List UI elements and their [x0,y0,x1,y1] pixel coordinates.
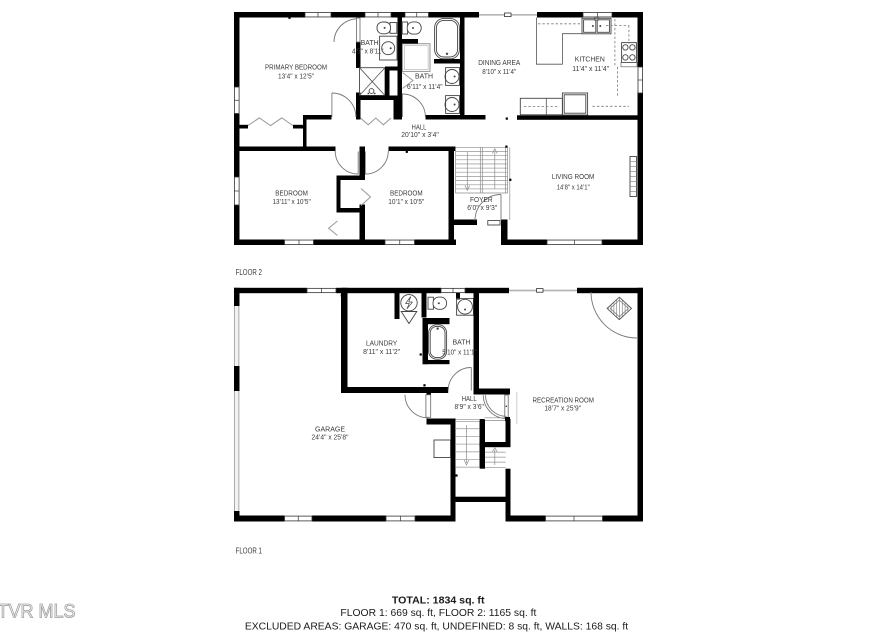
svg-text:5’10" x 11’1": 5’10" x 11’1" [442,348,477,356]
svg-text:14’8" x 14’1": 14’8" x 14’1" [557,183,590,191]
svg-text:13’4" x 12’5": 13’4" x 12’5" [278,72,314,80]
svg-text:TVR MLS: TVR MLS [0,602,76,623]
svg-text:EXCLUDED AREAS: GARAGE: 470 sq: EXCLUDED AREAS: GARAGE: 470 sq. ft, UNDE… [245,621,628,632]
svg-text:LAUNDRY: LAUNDRY [366,339,397,348]
svg-text:BATH: BATH [415,72,433,81]
svg-text:13’11" x 10’5": 13’11" x 10’5" [273,198,312,206]
svg-text:10’1" x 10’5": 10’1" x 10’5" [388,198,424,206]
svg-text:24’4" x 25’8": 24’4" x 25’8" [312,433,349,441]
svg-text:DINING AREA: DINING AREA [478,58,520,67]
svg-text:FOYER: FOYER [470,195,493,204]
svg-text:18’7" x 25’9": 18’7" x 25’9" [544,405,581,413]
svg-text:BATH: BATH [361,38,379,47]
svg-text:TOTAL: 1834 sq. ft: TOTAL: 1834 sq. ft [392,596,485,607]
svg-text:BEDROOM: BEDROOM [390,188,423,197]
svg-text:FLOOR 1: 669 sq. ft, FLOOR 2:: FLOOR 1: 669 sq. ft, FLOOR 2: 1165 sq. f… [340,608,536,619]
svg-text:6’11" x 11’4": 6’11" x 11’4" [407,83,443,91]
svg-text:8’10" x 11’4": 8’10" x 11’4" [482,68,516,76]
svg-text:KITCHEN: KITCHEN [575,54,605,63]
svg-text:LIVING ROOM: LIVING ROOM [552,172,595,181]
svg-text:BEDROOM: BEDROOM [275,188,308,197]
svg-text:HALL: HALL [462,394,477,403]
svg-text:FLOOR 2: FLOOR 2 [236,267,263,277]
svg-text:GARAGE: GARAGE [315,424,345,433]
svg-text:4’5" x 8’11": 4’5" x 8’11" [352,47,384,55]
svg-text:20’10" x 3’4": 20’10" x 3’4" [401,131,439,139]
svg-text:BATH: BATH [453,337,471,346]
svg-text:FLOOR 1: FLOOR 1 [236,545,263,555]
svg-text:PRIMARY BEDROOM: PRIMARY BEDROOM [265,63,327,72]
svg-text:RECREATION ROOM: RECREATION ROOM [533,395,594,404]
svg-text:11’4" x 11’4": 11’4" x 11’4" [572,65,609,73]
svg-text:8’11" x 11’2": 8’11" x 11’2" [363,348,400,356]
svg-text:6’0" x 9’3": 6’0" x 9’3" [467,204,497,212]
svg-text:8’9" x 3’6": 8’9" x 3’6" [455,403,485,411]
